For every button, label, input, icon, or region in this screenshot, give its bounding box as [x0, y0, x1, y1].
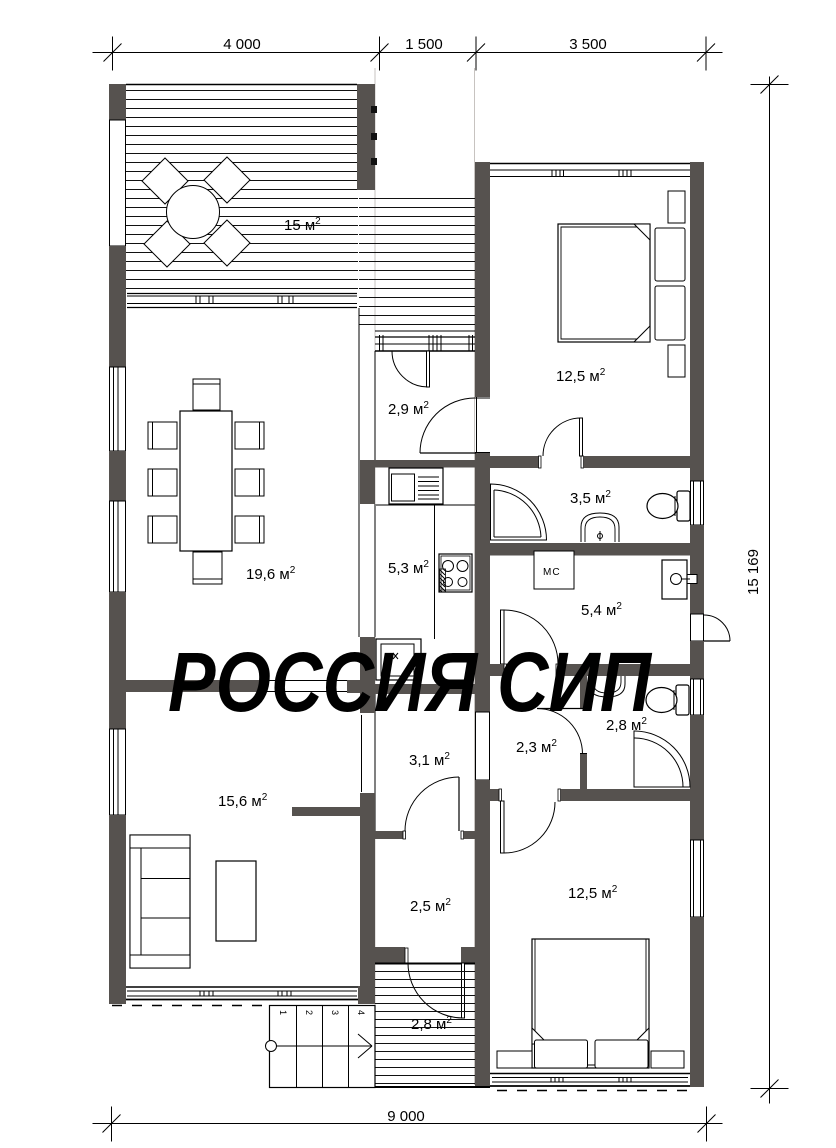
svg-text:15,6 м2: 15,6 м2: [218, 792, 268, 810]
svg-text:РОССИЯ СИП: РОССИЯ СИП: [168, 635, 652, 729]
svg-text:1 500: 1 500: [405, 36, 443, 53]
svg-text:2,9 м2: 2,9 м2: [388, 400, 429, 418]
svg-text:3: 3: [330, 1010, 340, 1015]
svg-text:МС: МС: [543, 567, 561, 578]
svg-text:3,1 м2: 3,1 м2: [409, 751, 450, 769]
svg-text:1: 1: [278, 1010, 288, 1015]
svg-text:9 000: 9 000: [387, 1108, 425, 1125]
svg-text:19,6 м2: 19,6 м2: [246, 565, 296, 583]
svg-text:15 169: 15 169: [745, 549, 762, 595]
svg-text:12,5 м2: 12,5 м2: [568, 884, 618, 902]
svg-text:2,3 м2: 2,3 м2: [516, 738, 557, 756]
svg-text:12,5 м2: 12,5 м2: [556, 367, 606, 385]
svg-text:4 000: 4 000: [223, 36, 261, 53]
svg-text:4: 4: [356, 1010, 366, 1015]
svg-text:3 500: 3 500: [569, 36, 607, 53]
svg-text:5,3 м2: 5,3 м2: [388, 559, 429, 577]
svg-text:2: 2: [304, 1010, 314, 1015]
svg-text:5,4 м2: 5,4 м2: [581, 601, 622, 619]
svg-text:2,8 м2: 2,8 м2: [411, 1015, 452, 1033]
svg-text:2,5 м2: 2,5 м2: [410, 897, 451, 915]
svg-text:3,5 м2: 3,5 м2: [570, 489, 611, 507]
